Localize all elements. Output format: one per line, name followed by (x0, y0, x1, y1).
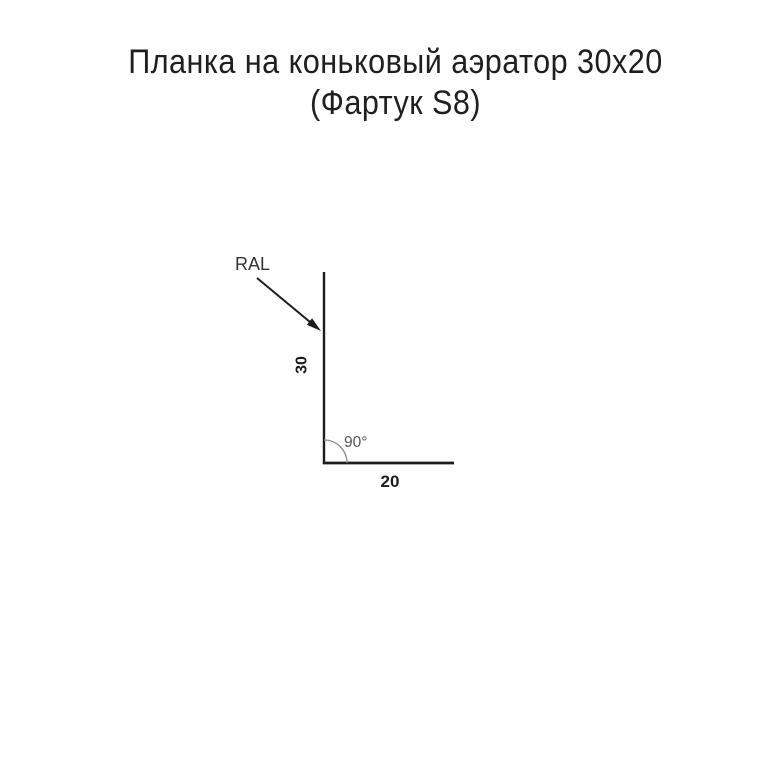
height-dimension-label: 30 (294, 356, 311, 374)
page-title-line2: (Фартук S8) (49, 83, 743, 124)
width-dimension-label: 20 (381, 472, 400, 491)
ral-arrow-line (257, 278, 310, 322)
page-title: Планка на коньковый аэратор 30x20 (Фарту… (10, 42, 771, 124)
profile-drawing: RAL 90° 30 20 (200, 240, 480, 510)
page-title-line1: Планка на коньковый аэратор 30x20 (49, 42, 743, 83)
ral-label: RAL (235, 254, 270, 274)
angle-label: 90° (344, 434, 367, 451)
